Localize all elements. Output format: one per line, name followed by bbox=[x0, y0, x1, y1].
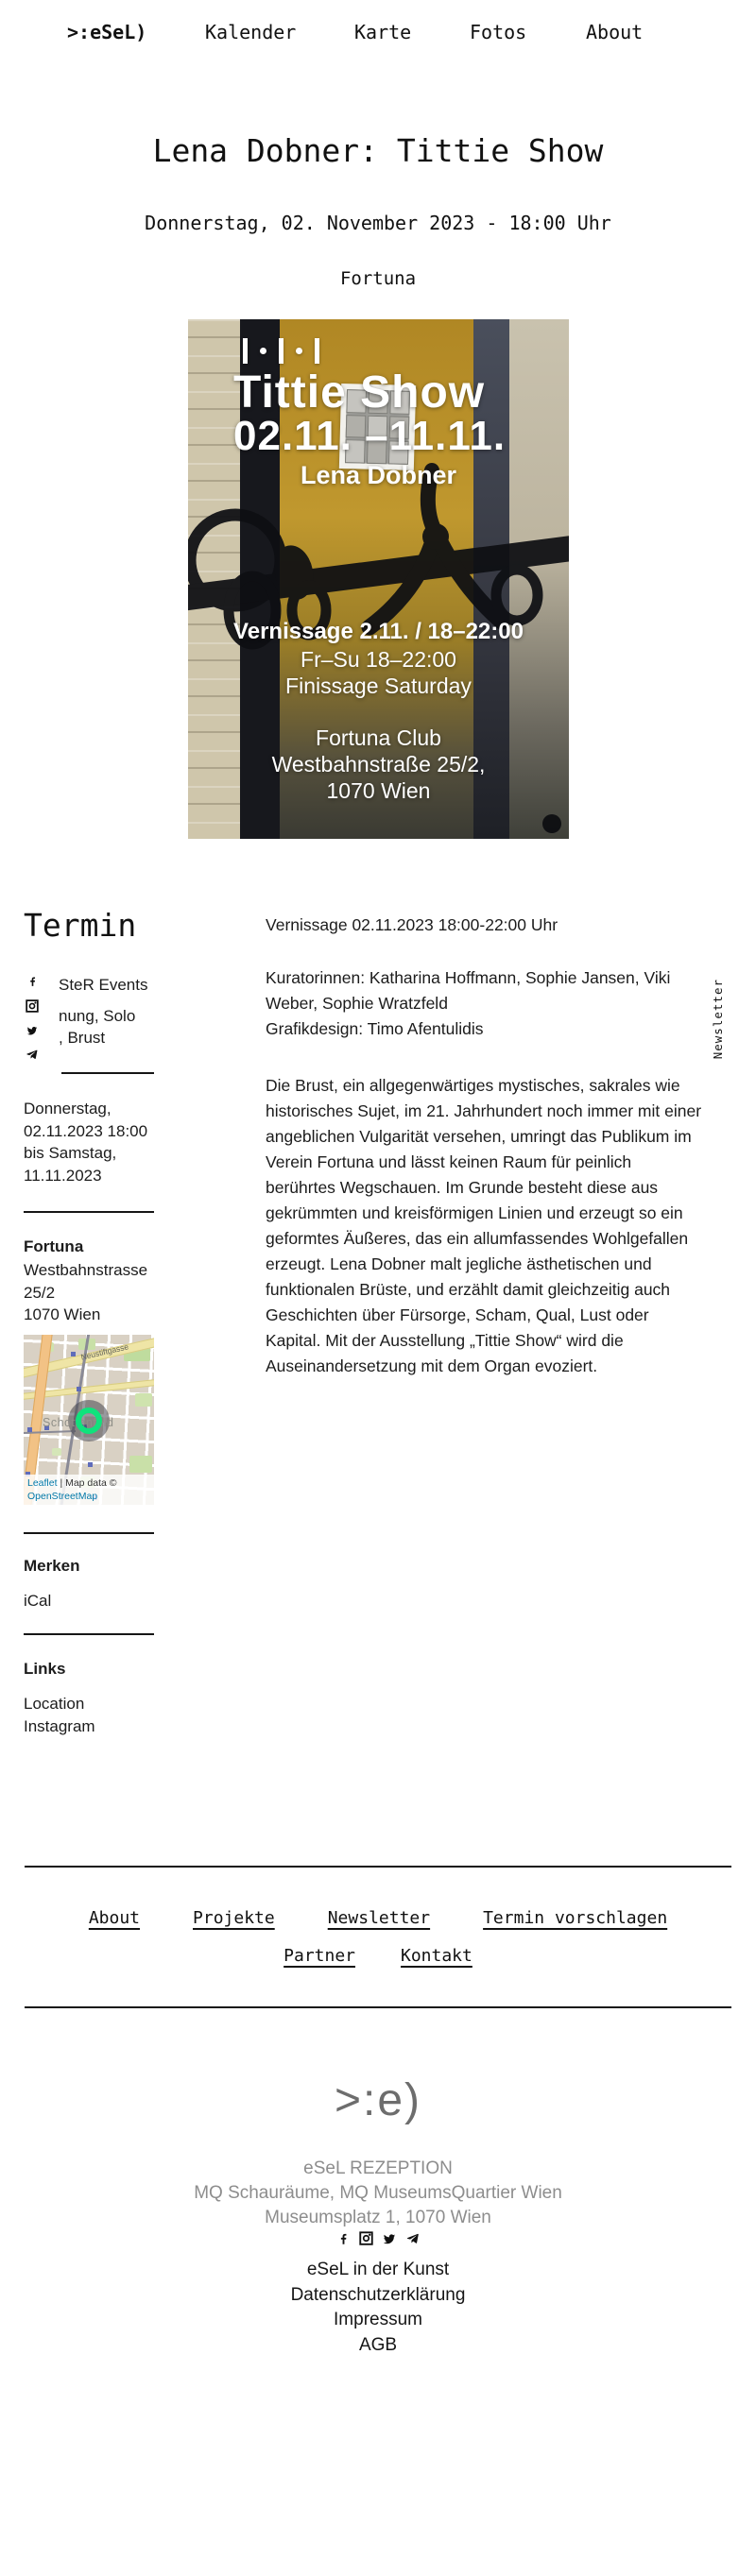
footer-social-icons bbox=[0, 2231, 756, 2245]
telegram-icon[interactable] bbox=[26, 1049, 39, 1061]
map-tram-stop bbox=[77, 1387, 81, 1391]
links-heading: Links bbox=[24, 1658, 65, 1680]
venue-address: Westbahnstrasse 25/2 1070 Wien bbox=[24, 1259, 147, 1326]
event-description: Die Brust, ein allgegenwärtiges mystisch… bbox=[266, 1073, 743, 1379]
ical-link[interactable]: iCal bbox=[24, 1590, 51, 1612]
poster-venue-street: Westbahnstraße 25/2, bbox=[188, 752, 569, 777]
twitter-icon[interactable] bbox=[26, 1025, 39, 1036]
map-park bbox=[52, 1448, 61, 1456]
openstreetmap-link[interactable]: OpenStreetMap bbox=[27, 1491, 97, 1502]
map-tram-stop bbox=[88, 1462, 93, 1467]
newsletter-tab[interactable]: Newsletter bbox=[711, 979, 725, 1059]
map-marker[interactable] bbox=[76, 1407, 102, 1434]
poster-dates: 02.11. –11.11. bbox=[233, 413, 506, 460]
telegram-icon[interactable] bbox=[405, 2232, 421, 2245]
footer-link-about[interactable]: About bbox=[89, 1908, 140, 1928]
facebook-icon[interactable] bbox=[26, 975, 39, 987]
credits-block: Kuratorinnen: Katharina Hoffmann, Sophie… bbox=[266, 965, 700, 1042]
footer-divider-top bbox=[25, 1866, 731, 1868]
nav-item-kalender[interactable]: Kalender bbox=[205, 21, 296, 43]
footer-nav-row-2: Partner Kontakt bbox=[0, 1946, 756, 1966]
page: >:eSeL) Kalender Karte Fotos About Lena … bbox=[0, 0, 756, 2576]
termin-heading: Termin bbox=[24, 907, 136, 944]
location-map[interactable]: Neustiftgasse Schottenfeld Leaflet | Map… bbox=[24, 1335, 154, 1505]
footer-divider-bottom bbox=[25, 2006, 731, 2008]
instagram-link[interactable]: Instagram bbox=[24, 1715, 95, 1738]
event-venue-link[interactable]: Fortuna bbox=[0, 268, 756, 289]
poster-title: Tittie Show bbox=[233, 367, 485, 418]
footer-logo: >:e) bbox=[0, 2074, 756, 2126]
footer-nav-row-1: About Projekte Newsletter Termin vorschl… bbox=[0, 1908, 756, 1928]
facebook-icon[interactable] bbox=[336, 2231, 351, 2245]
location-link[interactable]: Location bbox=[24, 1693, 84, 1715]
footer-link-datenschutz[interactable]: Datenschutzerklärung bbox=[0, 2283, 756, 2309]
map-attribution: Leaflet | Map data © OpenStreetMap bbox=[24, 1475, 154, 1505]
nav-item-about[interactable]: About bbox=[586, 21, 643, 43]
nav-item-fotos[interactable]: Fotos bbox=[470, 21, 526, 43]
footer-link-kontakt[interactable]: Kontakt bbox=[401, 1946, 472, 1966]
poster-finissage-line: Finissage Saturday bbox=[188, 674, 569, 699]
page-title: Lena Dobner: Tittie Show bbox=[0, 132, 756, 169]
nav-item-karte[interactable]: Karte bbox=[354, 21, 411, 43]
footer-link-esel-kunst[interactable]: eSeL in der Kunst bbox=[0, 2258, 756, 2283]
footer-link-partner[interactable]: Partner bbox=[283, 1946, 355, 1966]
event-datetime: Donnerstag, 02.11.2023 18:00 bis Samstag… bbox=[24, 1098, 147, 1186]
event-date: Donnerstag, 02. November 2023 - 18:00 Uh… bbox=[0, 212, 756, 234]
poster-vernissage-line: Vernissage 2.11. / 18–22:00 bbox=[188, 619, 569, 645]
poster-hours-line: Fr–Su 18–22:00 bbox=[188, 647, 569, 673]
map-park bbox=[129, 1456, 152, 1473]
poster-venue-city: 1070 Wien bbox=[188, 778, 569, 804]
instagram-icon[interactable] bbox=[359, 2231, 373, 2245]
tag-fragment-1[interactable]: SteR Events bbox=[59, 974, 148, 997]
map-tram-stop bbox=[71, 1352, 76, 1356]
leaflet-link[interactable]: Leaflet bbox=[27, 1477, 58, 1489]
footer-link-termin-vorschlagen[interactable]: Termin vorschlagen bbox=[483, 1908, 667, 1928]
footer-link-projekte[interactable]: Projekte bbox=[193, 1908, 275, 1928]
map-tram-stop bbox=[27, 1427, 32, 1432]
footer-link-agb[interactable]: AGB bbox=[0, 2333, 756, 2359]
footer-address: eSeL REZEPTION MQ Schauräume, MQ Museums… bbox=[0, 2157, 756, 2230]
merken-heading: Merken bbox=[24, 1555, 80, 1578]
footer-link-newsletter[interactable]: Newsletter bbox=[328, 1908, 430, 1928]
sidebar-divider-4 bbox=[24, 1633, 154, 1635]
instagram-icon[interactable] bbox=[26, 999, 39, 1013]
poster-artist: Lena Dobner bbox=[188, 461, 569, 490]
twitter-icon[interactable] bbox=[382, 2232, 397, 2245]
map-park bbox=[135, 1393, 152, 1407]
footer-legal-links: eSeL in der Kunst Datenschutzerklärung I… bbox=[0, 2258, 756, 2358]
sidebar-divider-1 bbox=[61, 1072, 154, 1074]
site-logo[interactable]: >:eSeL) bbox=[67, 21, 146, 43]
vernissage-line: Vernissage 02.11.2023 18:00-22:00 Uhr bbox=[266, 915, 558, 935]
venue-name: Fortuna bbox=[24, 1236, 83, 1258]
sidebar-divider-2 bbox=[24, 1211, 154, 1213]
tag-fragment-2[interactable]: nung, Solo bbox=[59, 1005, 135, 1028]
sidebar-divider-3 bbox=[24, 1532, 154, 1534]
footer-link-impressum[interactable]: Impressum bbox=[0, 2308, 756, 2333]
tag-fragment-3[interactable]: , Brust bbox=[59, 1027, 105, 1049]
poster-marks bbox=[243, 338, 319, 364]
event-poster-image[interactable]: Tittie Show 02.11. –11.11. Lena Dobner V… bbox=[188, 319, 569, 839]
poster-venue-name: Fortuna Club bbox=[188, 725, 569, 751]
